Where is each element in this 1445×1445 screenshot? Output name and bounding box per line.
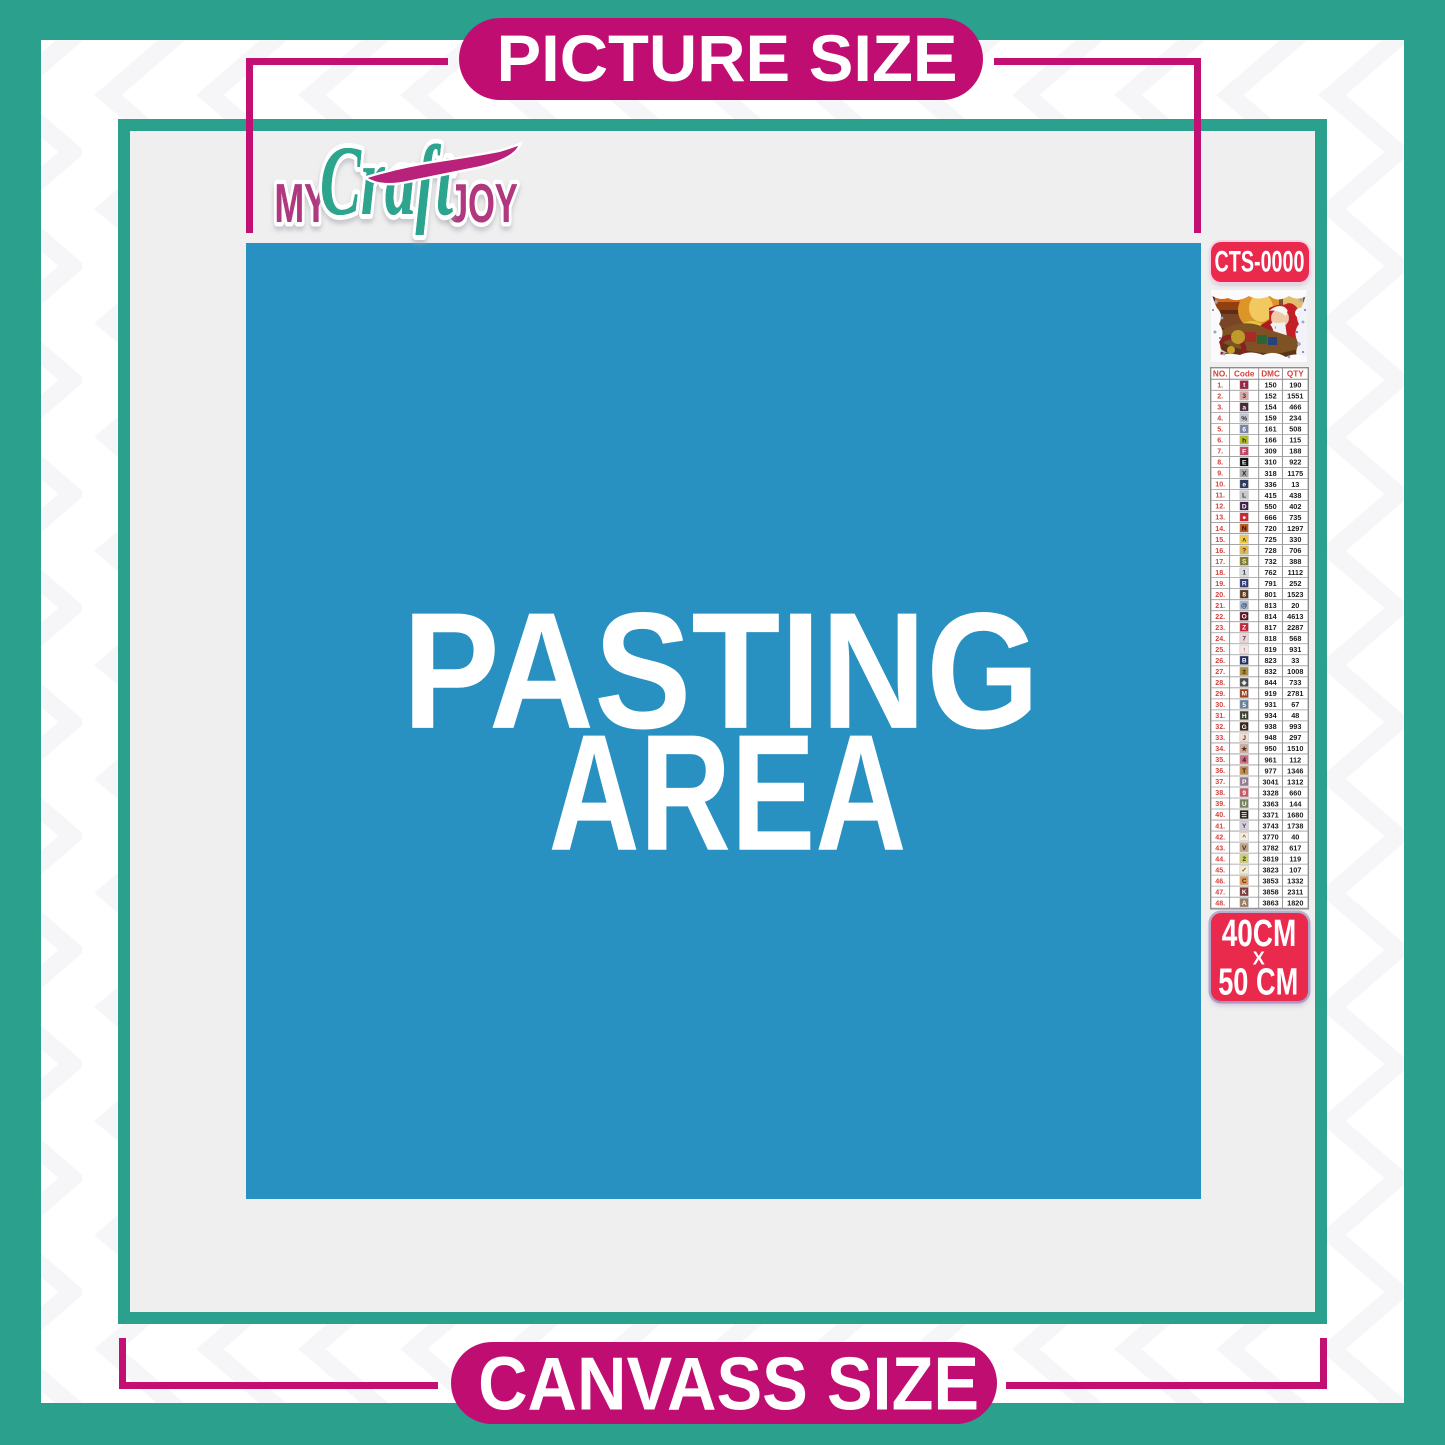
svg-text:CTS-0000: CTS-0000 [1215,246,1305,279]
svg-text:50 CM: 50 CM [1218,962,1298,1004]
svg-text:PICTURE SIZE: PICTURE SIZE [497,22,958,95]
svg-text:JOY: JOY [449,172,518,234]
svg-text:CANVASS SIZE: CANVASS SIZE [478,1341,979,1425]
svg-text:AREA: AREA [549,701,907,886]
